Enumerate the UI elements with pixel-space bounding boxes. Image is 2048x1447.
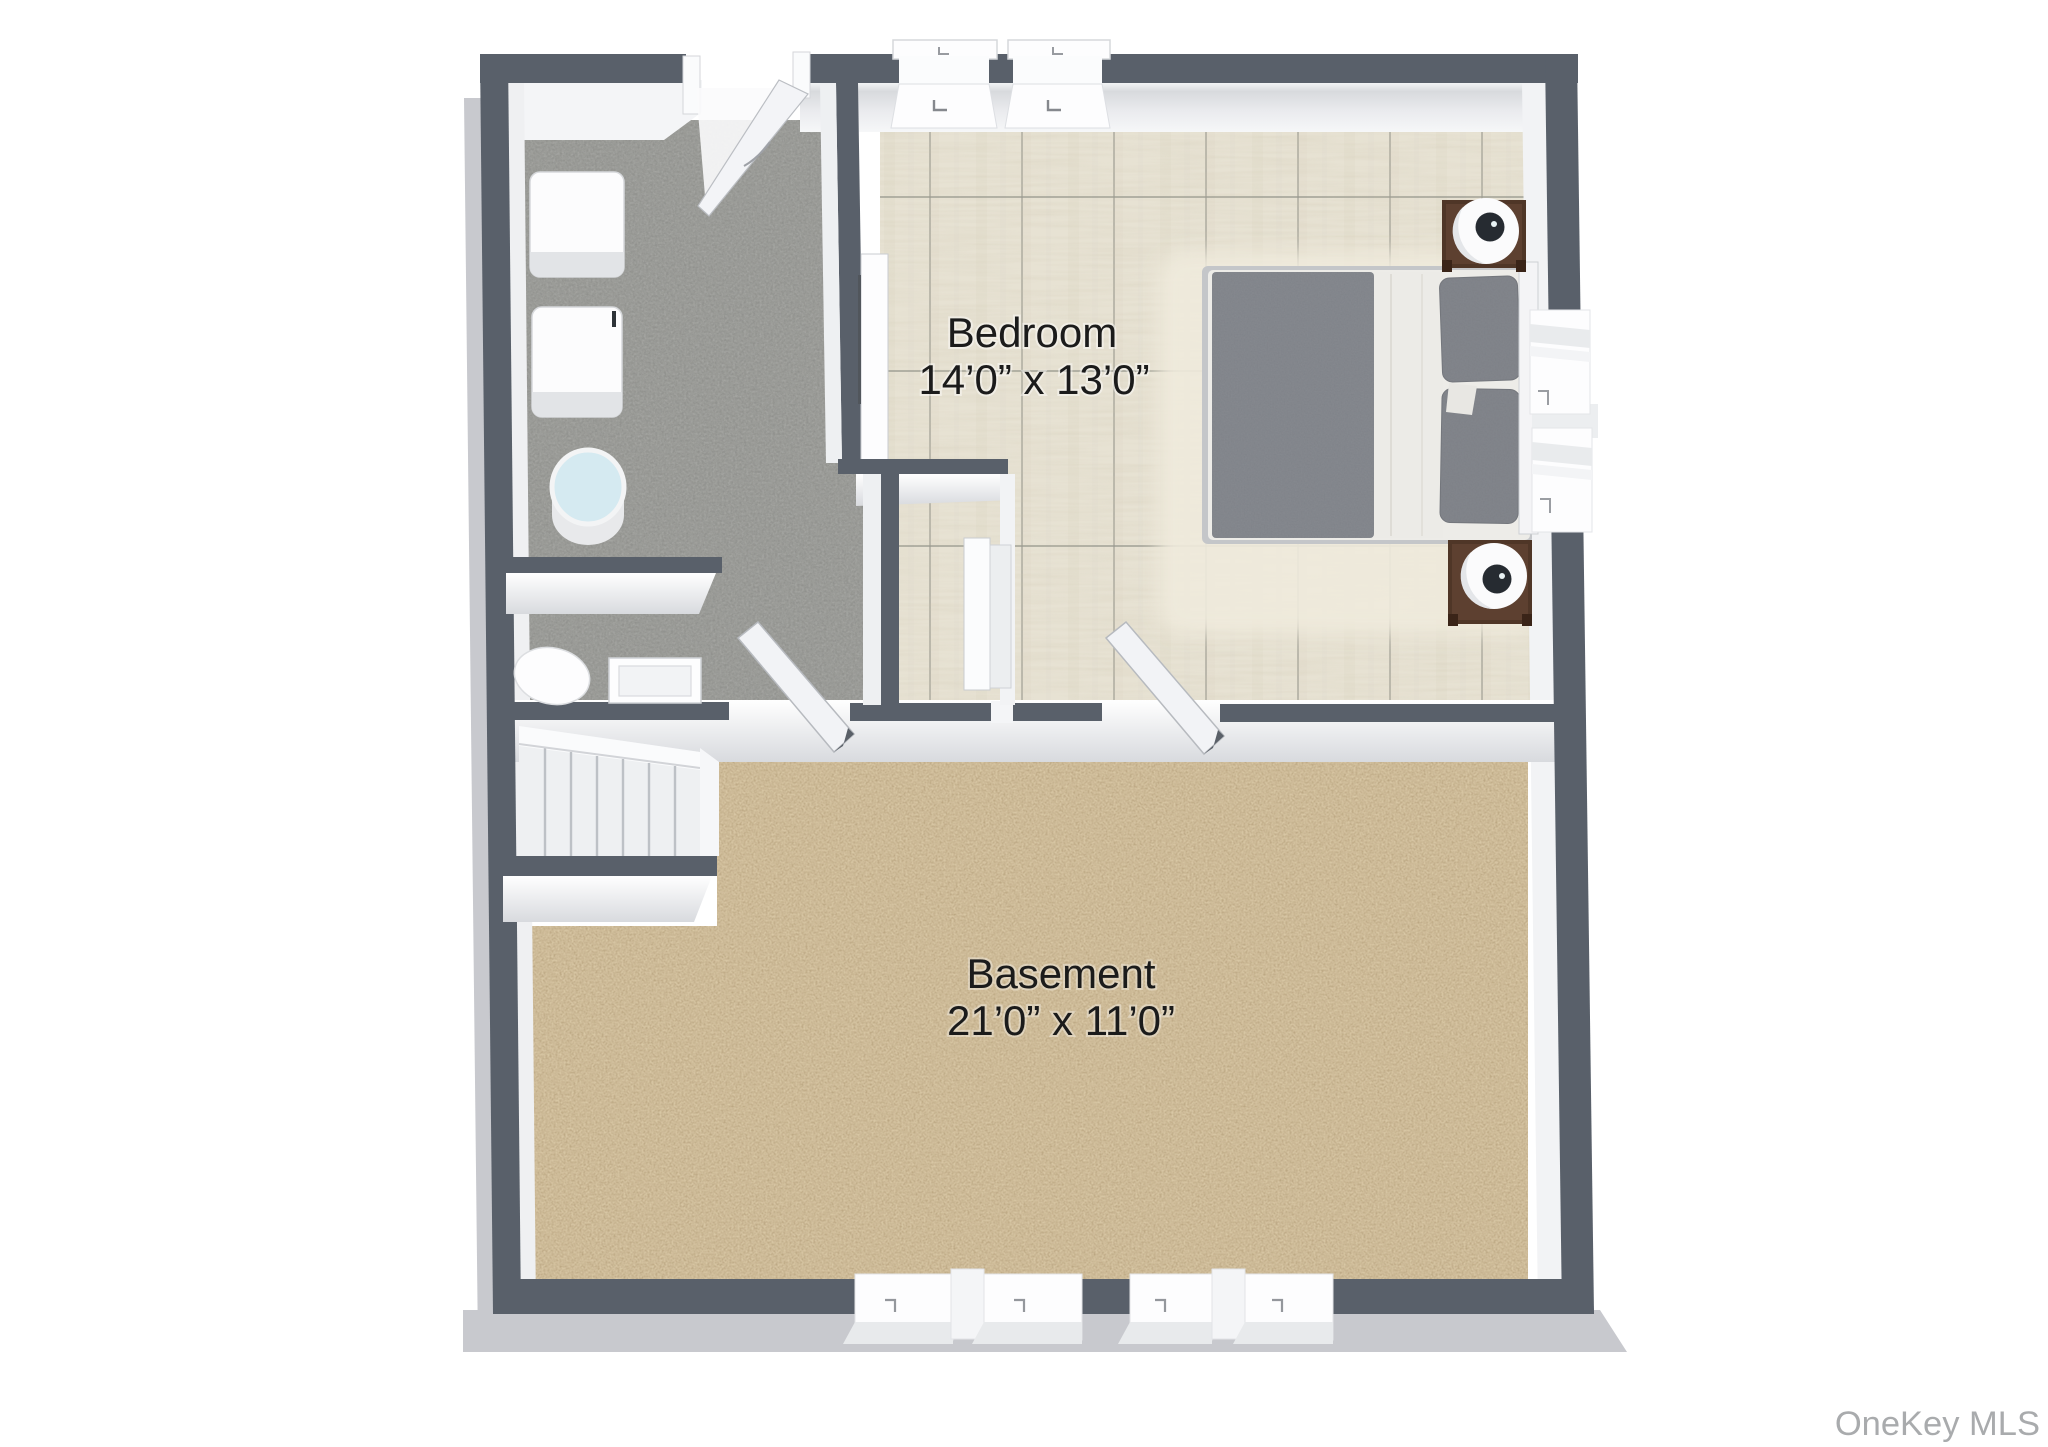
svg-text:Bedroom: Bedroom — [947, 309, 1117, 356]
svg-text:14’0” x 13’0”: 14’0” x 13’0” — [918, 356, 1149, 403]
svg-text:21’0” x 11’0”: 21’0” x 11’0” — [947, 997, 1175, 1044]
svg-text:Basement: Basement — [966, 950, 1155, 997]
svg-text:OneKey MLS: OneKey MLS — [1835, 1405, 2040, 1443]
